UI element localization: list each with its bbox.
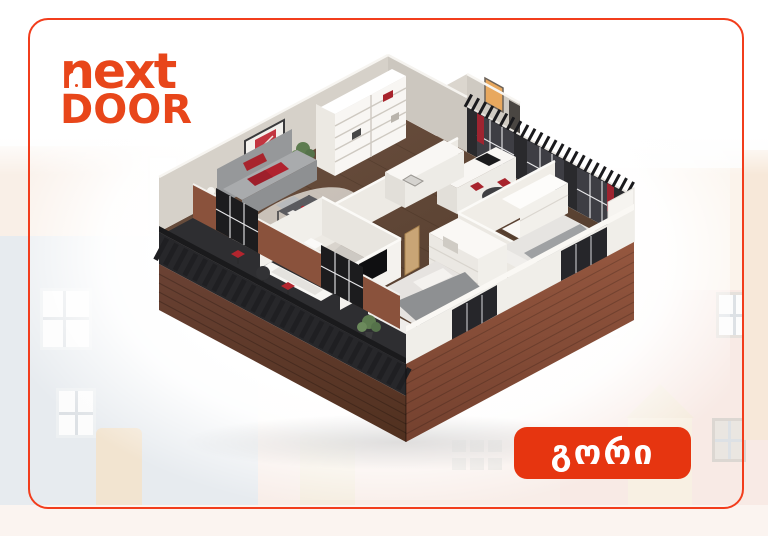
faded-ground-strip bbox=[0, 505, 768, 536]
red-curtain bbox=[477, 113, 484, 145]
promo-graphic: next DOOR გორი bbox=[0, 0, 768, 536]
floor-plan-illustration bbox=[143, 50, 643, 480]
bistro-table bbox=[256, 266, 270, 280]
city-badge-label: გორი bbox=[551, 436, 655, 470]
faded-door-right-edge bbox=[744, 150, 768, 440]
logo-line-1: next bbox=[60, 52, 192, 92]
nextdoor-logo: next DOOR bbox=[60, 52, 192, 128]
logo-line-2: DOOR bbox=[60, 93, 192, 128]
doorknob-icon bbox=[75, 84, 78, 87]
door-icon bbox=[69, 73, 78, 92]
open-door bbox=[405, 226, 419, 275]
city-badge[interactable]: გორი bbox=[514, 427, 691, 479]
